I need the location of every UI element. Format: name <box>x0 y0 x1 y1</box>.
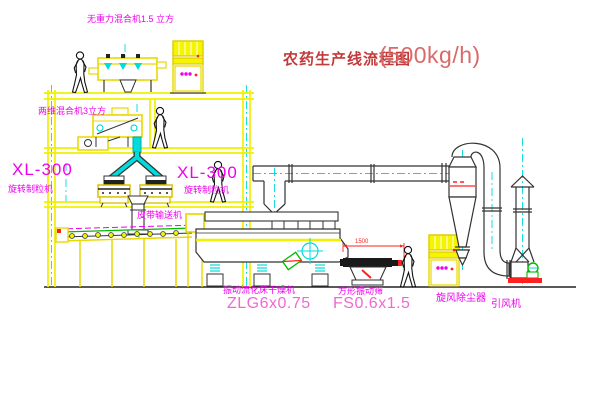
label-cyclone: 旋风除尘器 <box>436 294 486 304</box>
label-dryer-model: ZLG6x0.75 <box>227 296 311 312</box>
label-granulator-left-name: 旋转制粒机 <box>8 185 53 194</box>
label-granulator-center-name: 旋转制粒机 <box>184 186 229 195</box>
gravity-free-mixer <box>89 54 166 92</box>
label-granulator-left-model: XL-300 <box>12 161 73 178</box>
fluid-bed-dryer <box>196 212 348 286</box>
granulator-left <box>98 176 130 207</box>
cad-flow-diagram: 无重力混合机1.5 立方 两维混合机3立方 XL-300 旋转制粒机 XL-30… <box>0 0 600 403</box>
square-sieve <box>340 243 404 285</box>
label-sieve-dimension: 1500 <box>355 239 368 245</box>
belt-conveyor <box>56 214 204 287</box>
packing-cabinet-ground <box>426 235 462 287</box>
label-belt-conveyor: 皮带输送机 <box>137 211 182 220</box>
diagram-title-capacity: (500kg/h) <box>379 44 481 67</box>
person-ground <box>401 246 416 287</box>
y-chute <box>111 152 161 178</box>
induced-draft-fan <box>508 262 542 283</box>
label-granulator-center-model: XL-300 <box>177 164 238 181</box>
label-fan: 引风机 <box>491 300 521 310</box>
label-dryer-name: 振动流化床干燥机 <box>223 286 295 295</box>
person-roof <box>73 52 88 93</box>
label-gravity-free-mixer: 无重力混合机1.5 立方 <box>87 15 174 24</box>
label-sieve-model: FS0.6x1.5 <box>333 296 410 312</box>
packing-cabinet-roof <box>170 41 206 93</box>
label-floor2-mixer: 两维混合机3立方 <box>38 107 106 116</box>
exhaust-duct <box>253 163 451 214</box>
cyclone-outlet-pipe <box>482 168 510 279</box>
